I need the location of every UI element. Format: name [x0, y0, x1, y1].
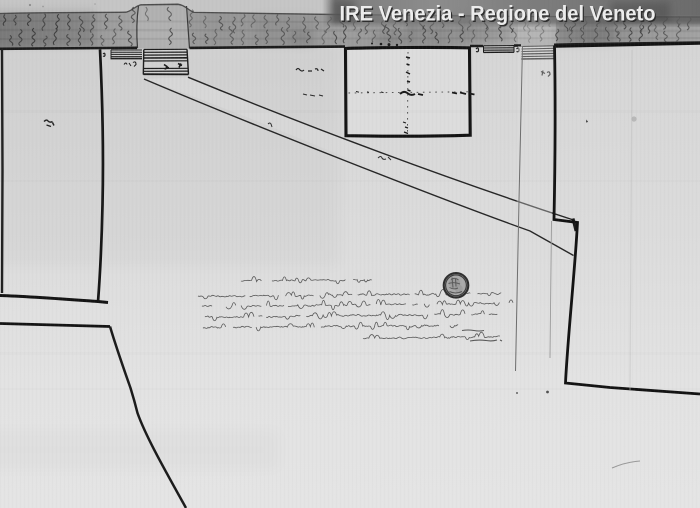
- svg-text:IRE Venezia - Regione del Vene: IRE Venezia - Regione del Veneto: [340, 2, 656, 26]
